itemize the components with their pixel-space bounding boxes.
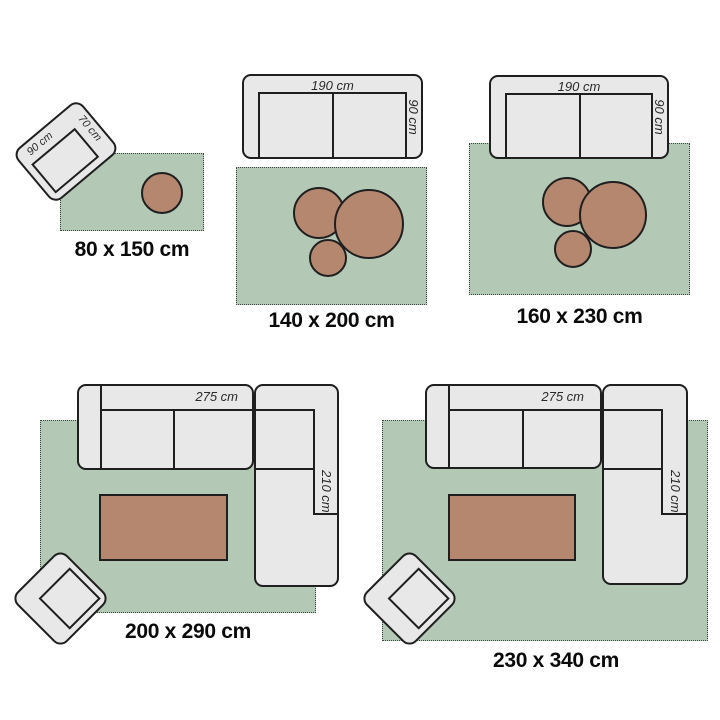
rug-size-guide: 90 cm 70 cm 80 x 150 cm 190 cm 90 cm 140…	[0, 0, 720, 720]
sofa-width-label: 190 cm	[491, 80, 667, 93]
coffee-table-circle-large	[579, 181, 647, 249]
coffee-table-rect	[448, 494, 576, 561]
size-label-200x290: 200 x 290 cm	[50, 620, 326, 643]
chaise-cushion-line	[256, 468, 313, 470]
sofa-width-label: 190 cm	[244, 79, 421, 92]
sectional-depth-label: 210 cm	[320, 470, 333, 513]
sofa-cushion-divider	[579, 93, 581, 157]
sectional-sofa-chaise: 210 cm	[254, 384, 339, 587]
sofa-depth-label: 90 cm	[407, 99, 420, 134]
chaise-backrest-line	[256, 409, 313, 411]
chaise-inner-line	[313, 409, 315, 515]
sectional-width-label: 275 cm	[195, 390, 238, 403]
sectional-cushion-divider	[522, 409, 524, 467]
size-label-80x150: 80 x 150 cm	[55, 238, 209, 261]
size-label-160x230: 160 x 230 cm	[469, 305, 690, 328]
pouf-circle	[141, 172, 183, 214]
sectional-backrest-line	[448, 409, 600, 411]
sofa-two-seater: 190 cm 90 cm	[489, 75, 669, 159]
chaise-backrest-line	[604, 409, 661, 411]
size-label-230x340: 230 x 340 cm	[418, 649, 694, 672]
sofa-cushion-divider	[332, 92, 334, 157]
sofa-two-seater: 190 cm 90 cm	[242, 74, 423, 159]
sectional-armrest-line	[100, 386, 102, 468]
chaise-inner-line	[661, 409, 663, 515]
chaise-cushion-line	[604, 468, 661, 470]
sectional-armrest-line	[448, 386, 450, 467]
coffee-table-circle-large	[334, 189, 404, 259]
sectional-backrest-line	[100, 409, 252, 411]
size-label-140x200: 140 x 200 cm	[236, 309, 427, 332]
sofa-depth-label: 90 cm	[653, 99, 666, 134]
sectional-sofa-main: 275 cm	[77, 384, 254, 470]
sectional-width-label: 275 cm	[541, 390, 584, 403]
chaise-armrest-end-line	[313, 513, 337, 515]
sectional-sofa-chaise: 210 cm	[602, 384, 688, 585]
coffee-table-rect	[99, 494, 228, 561]
chaise-armrest-end-line	[661, 513, 686, 515]
sectional-depth-label: 210 cm	[669, 470, 682, 513]
sectional-sofa-main: 275 cm	[425, 384, 602, 469]
sectional-cushion-divider	[173, 409, 175, 468]
